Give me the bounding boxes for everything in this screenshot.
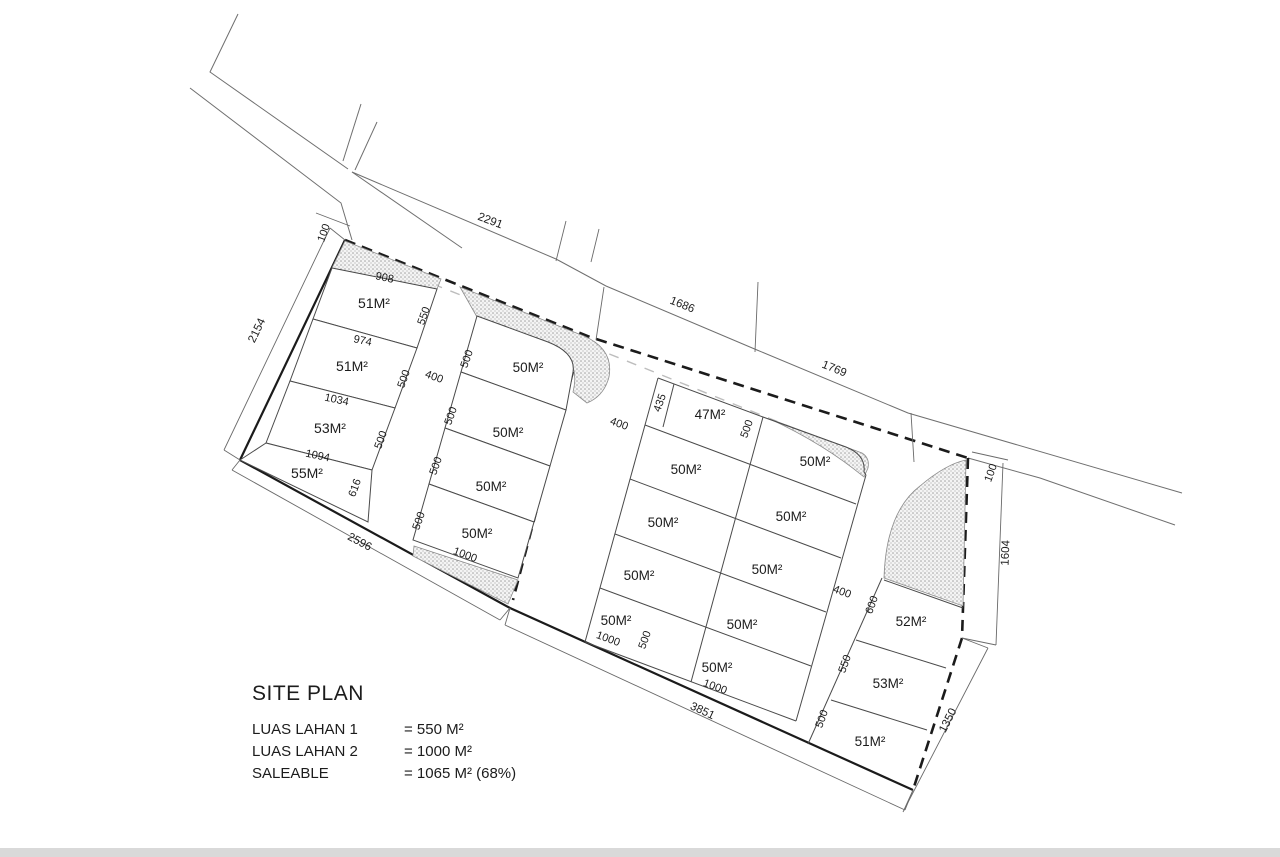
- lot-b2-area-label: 50M²: [493, 425, 524, 440]
- lot-b3-area-label: 50M²: [476, 479, 507, 494]
- footer-bar: [0, 848, 1280, 857]
- dimline-right: [962, 463, 1003, 645]
- legend-value-3: = 1065 M² (68%): [404, 765, 516, 782]
- road-edge-branch-right-a: [343, 104, 361, 161]
- legend-label-1: LUAS LAHAN 1: [252, 721, 358, 738]
- site-plan-page: 51M² 51M² 53M² 55M² 908 974 1034 1094 55…: [0, 0, 1280, 857]
- lot-c1-2-area-label: 50M²: [671, 462, 702, 477]
- lot-d2-area-label: 53M²: [873, 676, 904, 691]
- dim-top-offset-label: 100: [315, 222, 333, 243]
- dim-c-front-depth: 500: [738, 418, 756, 439]
- block-c-top-edge: [658, 378, 866, 475]
- lot-c2-4-area-label: 50M²: [727, 617, 758, 632]
- block-c-divider: [691, 417, 763, 682]
- dim-d2-depth: 550: [836, 653, 854, 674]
- lot-c2-5-area-label: 50M²: [702, 660, 733, 675]
- lot-d3-area-label: 51M²: [855, 734, 886, 749]
- legend-value-1: = 550 M²: [404, 721, 464, 738]
- legend-label-3: SALEABLE: [252, 765, 329, 782]
- lot-c1-1-area-label: 47M²: [695, 407, 726, 422]
- dim-gap-cd-label: 400: [831, 583, 852, 601]
- dim-top-right-label: 1769: [820, 359, 848, 380]
- dim-d3-depth: 500: [813, 708, 831, 729]
- lot-b4-area-label: 50M²: [462, 526, 493, 541]
- dim-bottom-right-label: 1350: [937, 707, 959, 735]
- dim-c1-width: 1000: [594, 629, 621, 649]
- lot-c2-1-area-label: 50M²: [800, 454, 831, 469]
- lot-a3-area-label: 53M²: [314, 420, 346, 436]
- dim-c-bottom-depth: 500: [636, 629, 654, 650]
- block-c: 47M² 50M² 50M² 50M² 50M² 50M² 50M² 50M² …: [585, 378, 866, 721]
- road-edge-branch-right-b: [355, 122, 377, 170]
- block-b: 50M² 50M² 50M² 50M² 500 500 500 500 1000: [410, 316, 573, 578]
- lot-c1-3-area-label: 50M²: [648, 515, 679, 530]
- block-c-left-edge: [585, 378, 658, 642]
- dimline-top-right-ext: [911, 413, 914, 462]
- dim-right-offset-label: 100: [982, 462, 1000, 483]
- dim-bottom-label: 3851: [688, 700, 716, 722]
- boundary-top-dashed: [345, 240, 968, 458]
- dim-left-label: 2154: [246, 316, 268, 345]
- lot-d1-area-label: 52M²: [896, 614, 927, 629]
- legend-title: SITE PLAN: [252, 682, 364, 705]
- dim-gap-ab-label: 400: [423, 368, 444, 386]
- block-d-row-line-1: [856, 640, 946, 668]
- road-funnel-line: [352, 172, 462, 248]
- lot-a2-area-label: 51M²: [336, 358, 368, 374]
- block-a: 51M² 51M² 53M² 55M² 908 974 1034 1094 55…: [240, 268, 437, 522]
- lot-c2-3-area-label: 50M²: [752, 562, 783, 577]
- lot-b1-area-label: 50M²: [513, 360, 544, 375]
- legend: SITE PLAN LUAS LAHAN 1 = 550 M² LUAS LAH…: [252, 682, 516, 782]
- dimline-top-road-ext: [556, 221, 599, 262]
- dim-bottom-left-label: 2596: [345, 531, 373, 554]
- dimline-right-offset: [972, 452, 1008, 460]
- road-edge-branch-left: [210, 14, 348, 169]
- dim-right-label: 1604: [1000, 539, 1013, 566]
- dim-c2-width: 1000: [701, 677, 728, 697]
- boundary-bottom: [240, 460, 913, 790]
- lot-c1-4-area-label: 50M²: [624, 568, 655, 583]
- road-edge-top: [352, 172, 556, 259]
- site-plan-drawing: 51M² 51M² 53M² 55M² 908 974 1034 1094 55…: [0, 0, 1280, 857]
- dim-c1-1-depth: 435: [651, 392, 669, 413]
- road-edge-east: [556, 259, 1182, 493]
- lot-a4-area-label: 55M²: [291, 465, 323, 481]
- legend-label-2: LUAS LAHAN 2: [252, 743, 358, 760]
- lot-a1-area-label: 51M²: [358, 295, 390, 311]
- block-c-right-edge: [796, 475, 866, 721]
- dim-top-road-label: 2291: [476, 211, 504, 231]
- block-c-row-line-4: [600, 588, 811, 666]
- dim-top-mid-label: 1686: [668, 295, 696, 316]
- dim-gap-bc-label: 400: [608, 415, 629, 433]
- lot-c1-5-area-label: 50M²: [601, 613, 632, 628]
- legend-value-2: = 1000 M²: [404, 743, 472, 760]
- dim-d1-depth: 600: [863, 594, 881, 615]
- block-d-row-line-2: [831, 700, 927, 730]
- lot-c2-2-area-label: 50M²: [776, 509, 807, 524]
